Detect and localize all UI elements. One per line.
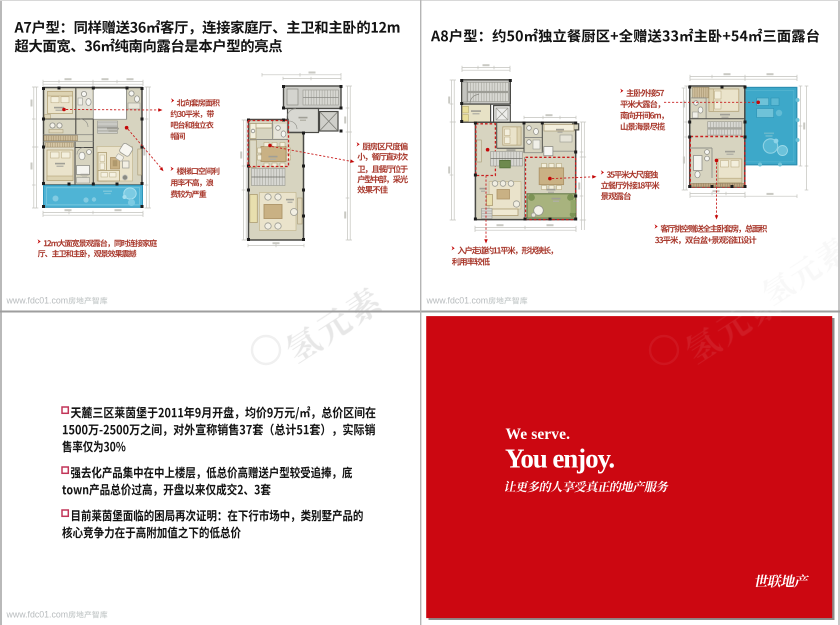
svg-text:www.fdc01.com: www.fdc01.com — [6, 610, 69, 620]
svg-text:www.fdc01.com: www.fdc01.com — [426, 296, 489, 306]
svg-text:You enjoy.: You enjoy. — [505, 444, 614, 474]
svg-text:www.fdc01.com: www.fdc01.com — [6, 296, 69, 306]
svg-text:We serve.: We serve. — [506, 426, 571, 443]
